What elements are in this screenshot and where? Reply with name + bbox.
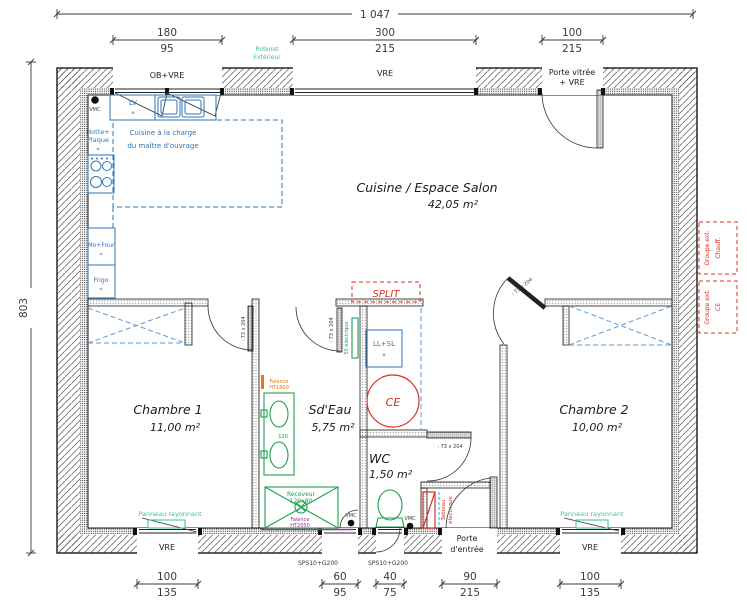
svg-text:électrique: électrique: [447, 496, 454, 524]
living-room-name: Cuisine / Espace Salon: [356, 180, 497, 195]
svg-text:Hotte+: Hotte+: [86, 128, 109, 136]
wc-door-size: : 73 x 204: [437, 444, 462, 450]
kitchen-owner-zone: Cuisine à la charge du maître d'ouvrage: [113, 120, 282, 230]
svg-text:VMC: VMC: [89, 107, 101, 113]
fridge: Frigo *: [88, 265, 115, 298]
toilet: [376, 490, 404, 527]
svg-text:Mo+Four: Mo+Four: [87, 242, 115, 249]
svg-text:Receveur: Receveur: [287, 491, 316, 498]
svg-text:95: 95: [160, 43, 173, 55]
sdeau-area: 5,75 m²: [311, 421, 355, 434]
svg-text:CE: CE: [386, 396, 401, 409]
electrical-panel: Tableau électrique: [423, 492, 454, 528]
dim-bottom-2: 40 75: [373, 571, 407, 599]
exterior-unit-ce: Groupe ext. CE: [699, 281, 737, 333]
wc-name: WC: [369, 451, 390, 466]
svg-text:CE: CE: [715, 303, 722, 311]
technical-equipment: SPLIT LL+SL * CE SS électrique Tableau é…: [89, 46, 737, 532]
svg-text:100: 100: [580, 571, 600, 583]
sdeau-door-leaf: [337, 308, 342, 352]
svg-text:Chauff.: Chauff.: [715, 237, 722, 259]
cooktop: Hotte+ Plaque *: [86, 128, 114, 193]
svg-text:*: *: [96, 146, 100, 154]
svg-text:Panneau rayonnant: Panneau rayonnant: [138, 510, 202, 518]
svg-text:VMC: VMC: [345, 513, 357, 519]
window-vre-c2-label: VRE: [582, 543, 598, 552]
kitchen-note-2: du maître d'ouvrage: [127, 142, 198, 150]
vmc-sdeau: VMC: [345, 513, 357, 526]
closet-chambre2: [569, 306, 672, 345]
towel-radiator: SS électrique: [343, 318, 358, 358]
vanity-unit: Faïence HT1800 120: [261, 375, 294, 475]
window-vre-c1-label: VRE: [159, 543, 175, 552]
wc-area: 1,50 m²: [369, 468, 413, 481]
chambre1-door-size: : 73 x 204: [241, 316, 247, 341]
svg-text:Groupe ext.: Groupe ext.: [704, 289, 711, 324]
svg-text:SS électrique: SS électrique: [343, 321, 350, 354]
svg-text:180: 180: [157, 27, 177, 39]
vmc-wc: VMC: [404, 516, 416, 529]
entry-door-leaf: [490, 477, 497, 528]
svg-text:HT2050: HT2050: [290, 523, 310, 529]
svg-text:Robinet: Robinet: [256, 46, 280, 53]
dim-total-height: 803: [18, 298, 30, 318]
floor-plan: 1 047 803 180 95 300 215 100 215: [0, 0, 747, 604]
svg-text:135: 135: [580, 587, 600, 599]
svg-text:100: 100: [157, 571, 177, 583]
svg-text:Extérieur: Extérieur: [253, 54, 281, 61]
dim-total-width: 1 047: [360, 9, 390, 21]
sdeau-door-size: : 73 x 204: [329, 317, 335, 342]
svg-text:Panneau rayonnant: Panneau rayonnant: [560, 510, 624, 518]
svg-text:90: 90: [463, 571, 476, 583]
water-heater: CE: [367, 375, 419, 427]
exterior-unit-heating: Groupe ext. Chauff.: [699, 222, 737, 274]
svg-text:*: *: [100, 287, 103, 294]
sps-label-2: SPS10+G200: [368, 560, 408, 567]
svg-text:LL+SL: LL+SL: [373, 340, 395, 348]
svg-text:95: 95: [333, 587, 346, 599]
svg-text:40: 40: [383, 571, 396, 583]
porte-vitree-label-2: + VRE: [559, 78, 584, 87]
chambre2-door-swing: [493, 278, 508, 344]
svg-text:Tableau: Tableau: [441, 499, 447, 521]
svg-text:215: 215: [562, 43, 582, 55]
svg-text:SPLIT: SPLIT: [372, 289, 400, 300]
svg-text:Groupe ext.: Groupe ext.: [704, 230, 711, 265]
svg-text:60: 60: [333, 571, 346, 583]
svg-text:*: *: [382, 352, 386, 360]
shower-tray: Receveur 120x80 Faïence HT2050: [261, 487, 353, 530]
dim-top-1: 300 215: [290, 27, 479, 55]
window-vre-top-label: VRE: [377, 69, 393, 78]
washer-dryer: LL+SL *: [366, 330, 402, 367]
svg-text:Plaque: Plaque: [87, 136, 109, 144]
chambre1-door-leaf: [248, 306, 253, 351]
dim-top-0: 180 95: [110, 27, 225, 55]
chambre1-name: Chambre 1: [133, 402, 202, 417]
vmc-kitchen: VMC: [89, 96, 101, 113]
porte-entree-label-1: Porte: [457, 534, 478, 543]
dim-bottom-4: 100 135: [557, 571, 624, 599]
svg-text:215: 215: [375, 43, 395, 55]
chambre2-name: Chambre 2: [559, 402, 628, 417]
dim-bottom-1: 60 95: [319, 571, 361, 599]
dim-bottom-3: 90 215: [439, 571, 500, 599]
window-obvre-label: OB+VRE: [150, 71, 185, 80]
sdeau-name: Sd'Eau: [309, 402, 352, 417]
svg-text:135: 135: [157, 587, 177, 599]
svg-text:VMC: VMC: [404, 516, 416, 522]
sps-label-1: SPS10+G200: [298, 560, 338, 567]
living-room-area: 42,05 m²: [428, 198, 479, 211]
dim-bottom-0: 100 135: [134, 571, 201, 599]
dim-top-2: 100 215: [539, 27, 606, 55]
porte-vitree-swing: [542, 93, 597, 148]
exterior-tap: Robinet Extérieur: [253, 46, 281, 61]
kitchen-note-1: Cuisine à la charge: [130, 129, 197, 137]
dishwasher-label: LV: [129, 99, 137, 107]
svg-text:75: 75: [383, 587, 396, 599]
svg-text:HT1800: HT1800: [269, 385, 289, 391]
svg-text:Frigo: Frigo: [94, 277, 109, 284]
wc-door-leaf: [427, 432, 471, 438]
svg-text:120: 120: [278, 434, 288, 440]
chambre1-area: 11,00 m²: [150, 421, 201, 434]
oven-microwave: Mo+Four *: [87, 228, 115, 265]
porte-entree-label-2: d'entrée: [450, 544, 483, 554]
svg-text:*: *: [100, 252, 103, 259]
svg-text:*: *: [131, 110, 135, 118]
chambre2-area: 10,00 m²: [572, 421, 623, 434]
porte-vitree-leaf: [597, 90, 603, 148]
porte-vitree-label-1: Porte vitrée: [549, 67, 595, 77]
svg-text:300: 300: [375, 27, 395, 39]
svg-text:100: 100: [562, 27, 582, 39]
kitchen: LV * Cuisine à la charge du maître d'ouv…: [86, 95, 282, 298]
closet-chambre1: [88, 308, 185, 343]
svg-text:215: 215: [460, 587, 480, 599]
svg-text:120x80: 120x80: [290, 498, 313, 505]
